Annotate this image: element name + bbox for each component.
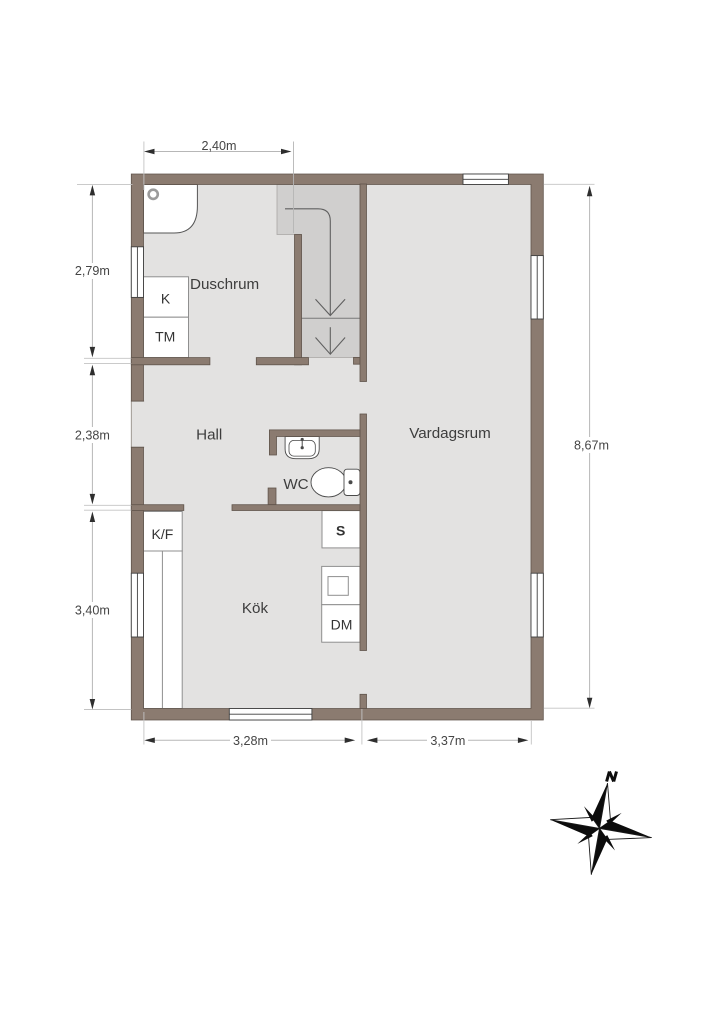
svg-text:WC: WC xyxy=(283,476,308,493)
svg-text:3,37m: 3,37m xyxy=(430,734,465,748)
svg-text:K/F: K/F xyxy=(152,526,174,542)
svg-text:Kök: Kök xyxy=(242,600,269,617)
svg-text:3,28m: 3,28m xyxy=(233,734,268,748)
svg-text:Vardagsrum: Vardagsrum xyxy=(409,425,491,442)
svg-text:Duschrum: Duschrum xyxy=(190,276,259,293)
svg-text:K: K xyxy=(161,291,171,307)
svg-text:TM: TM xyxy=(155,329,175,345)
svg-text:Hall: Hall xyxy=(196,427,222,444)
svg-text:3,40m: 3,40m xyxy=(75,604,110,618)
svg-text:8,67m: 8,67m xyxy=(574,439,609,453)
svg-text:2,40m: 2,40m xyxy=(201,139,236,153)
svg-text:2,38m: 2,38m xyxy=(75,429,110,443)
svg-text:2,79m: 2,79m xyxy=(75,264,110,278)
svg-text:S: S xyxy=(336,523,345,539)
svg-text:DM: DM xyxy=(331,617,353,633)
